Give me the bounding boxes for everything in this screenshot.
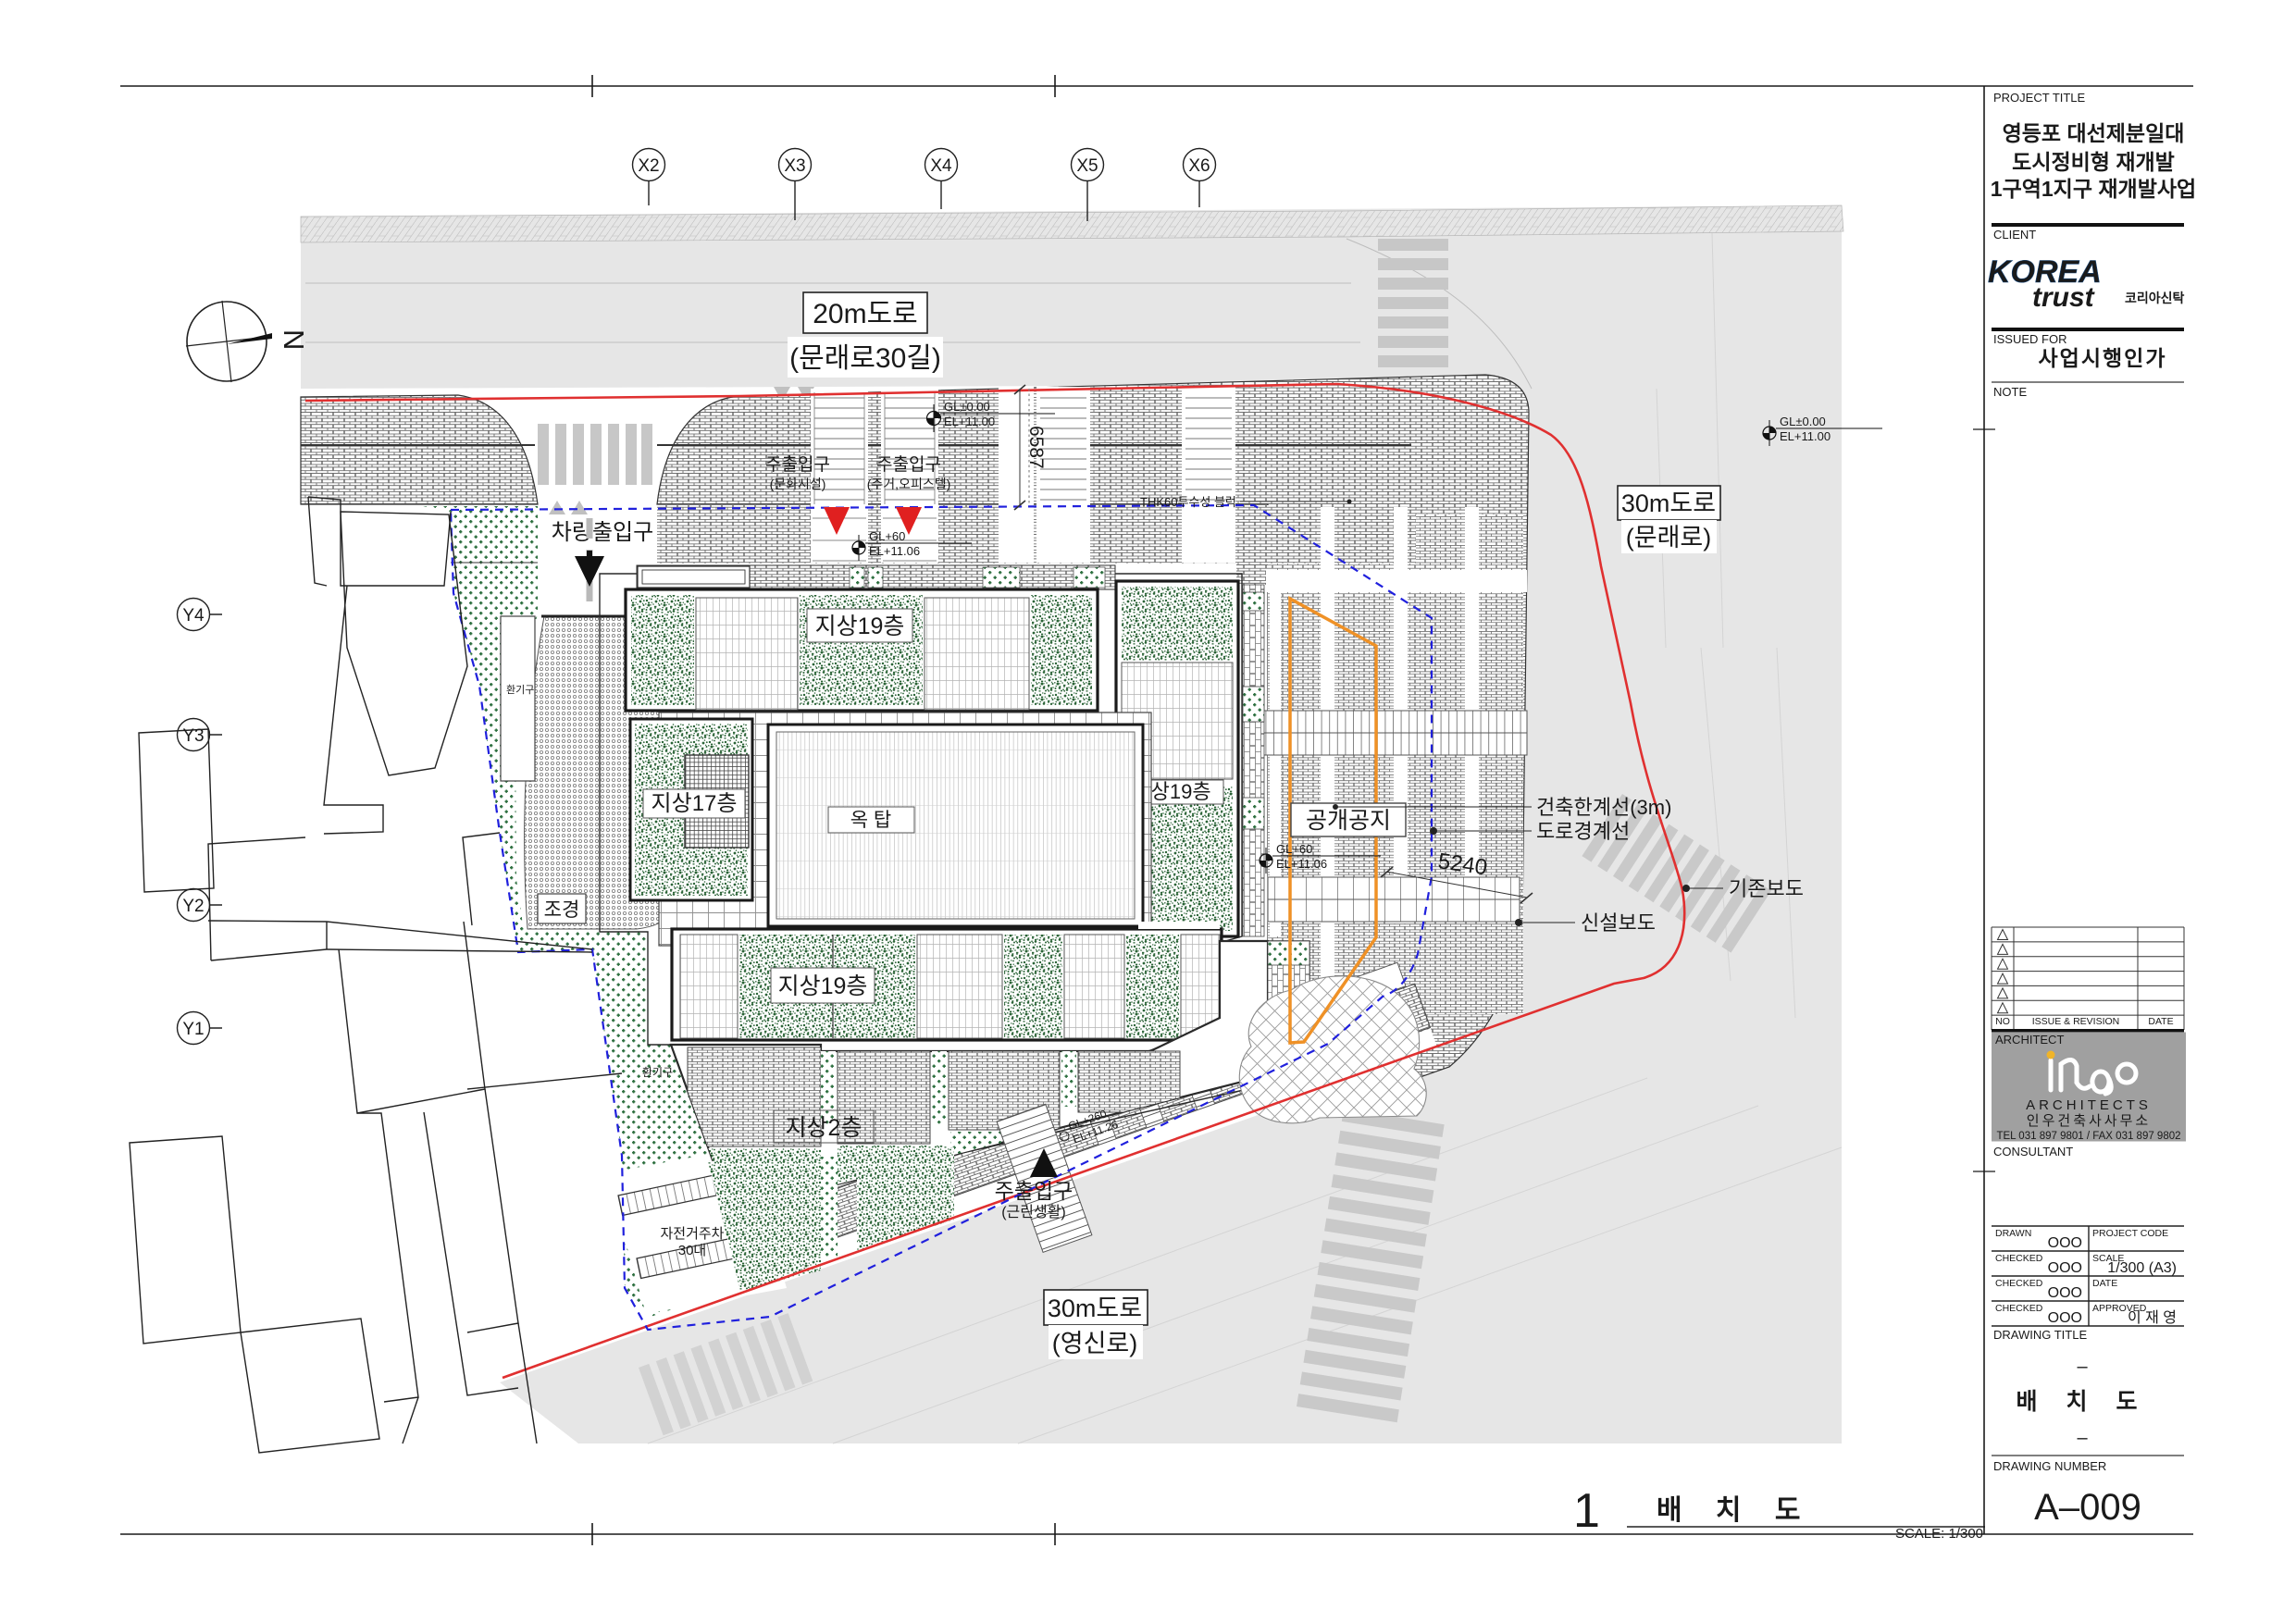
svg-text:1/300 (A3): 1/300 (A3) (2107, 1260, 2177, 1276)
svg-text:–: – (2077, 1428, 2088, 1448)
svg-text:GL±0.00: GL±0.00 (1780, 415, 1826, 428)
svg-text:지상17층: 지상17층 (652, 791, 738, 816)
svg-text:Y1: Y1 (182, 1020, 204, 1039)
svg-text:GL+60: GL+60 (869, 529, 905, 543)
svg-text:1: 1 (1573, 1484, 1600, 1538)
svg-text:N: N (278, 329, 310, 350)
svg-text:자전거주차: 자전거주차 (660, 1226, 724, 1242)
svg-text:CHECKED: CHECKED (1995, 1303, 2043, 1314)
svg-text:신설보도: 신설보도 (1581, 911, 1656, 935)
svg-text:6587: 6587 (1025, 426, 1047, 469)
svg-text:X2: X2 (638, 156, 659, 176)
svg-text:ARCHITECTS: ARCHITECTS (2026, 1097, 2152, 1113)
svg-text:환기구: 환기구 (506, 684, 534, 696)
svg-text:ISSUE & REVISION: ISSUE & REVISION (2032, 1016, 2120, 1027)
svg-text:(영신로): (영신로) (1052, 1330, 1138, 1357)
svg-text:차량출입구: 차량출입구 (552, 520, 653, 545)
svg-text:NO: NO (1995, 1016, 2010, 1027)
svg-text:OOO: OOO (2048, 1260, 2082, 1276)
svg-text:건축한계선(3m): 건축한계선(3m) (1536, 796, 1671, 819)
svg-text:30m도로: 30m도로 (1048, 1295, 1142, 1322)
svg-text:EL+11.00: EL+11.00 (1780, 429, 1831, 443)
svg-text:(주거,오피스텔): (주거,오피스텔) (867, 477, 951, 491)
svg-text:(문래로30길): (문래로30길) (789, 343, 941, 374)
svg-text:CHECKED: CHECKED (1995, 1278, 2043, 1289)
svg-text:GL±0.00: GL±0.00 (944, 400, 990, 414)
svg-text:ARCHITECT: ARCHITECT (1995, 1033, 2064, 1047)
svg-text:THK60투수성 블럭: THK60투수성 블럭 (1140, 495, 1236, 509)
svg-text:X3: X3 (784, 156, 805, 176)
svg-text:(근린생활): (근린생활) (1001, 1204, 1066, 1220)
svg-text:이 재 영: 이 재 영 (2128, 1309, 2177, 1326)
svg-text:공개공지: 공개공지 (1306, 808, 1391, 834)
svg-text:영등포 대선제분일대: 영등포 대선제분일대 (2003, 121, 2185, 145)
svg-text:1구역1지구 재개발사업: 1구역1지구 재개발사업 (1991, 177, 2196, 201)
svg-text:GL+60: GL+60 (1276, 842, 1312, 856)
svg-text:DRAWING NUMBER: DRAWING NUMBER (1993, 1459, 2106, 1473)
svg-text:CHECKED: CHECKED (1995, 1253, 2043, 1264)
svg-text:(문래로): (문래로) (1626, 524, 1712, 551)
svg-text:OOO: OOO (2048, 1310, 2082, 1326)
svg-text:도로경계선: 도로경계선 (1536, 820, 1630, 843)
svg-text:도시정비형 재개발: 도시정비형 재개발 (2012, 150, 2175, 174)
svg-text:인우건축사사무소: 인우건축사사무소 (2027, 1113, 2151, 1129)
svg-text:주출입구: 주출입구 (765, 454, 830, 475)
svg-text:EL+11.06: EL+11.06 (1276, 857, 1327, 871)
svg-text:OOO: OOO (2048, 1285, 2082, 1301)
svg-text:X5: X5 (1076, 156, 1098, 176)
svg-text:주출입구: 주출입구 (876, 454, 941, 475)
svg-text:EL+11.06: EL+11.06 (869, 544, 920, 558)
svg-text:사업시행인가: 사업시행인가 (2039, 346, 2167, 370)
svg-text:배 치 도: 배 치 도 (2017, 1389, 2149, 1415)
svg-text:지상2층: 지상2층 (786, 1115, 863, 1141)
svg-text:조경: 조경 (544, 899, 580, 921)
svg-text:Y3: Y3 (182, 726, 204, 746)
svg-text:A–009: A–009 (2034, 1487, 2141, 1528)
svg-text:(문화시설): (문화시설) (770, 477, 826, 491)
svg-text:DATE: DATE (2092, 1278, 2117, 1289)
svg-text:DRAWN: DRAWN (1995, 1228, 2031, 1239)
svg-text:trust: trust (2032, 282, 2096, 313)
svg-text:OOO: OOO (2048, 1235, 2082, 1251)
svg-text:–: – (2077, 1357, 2088, 1377)
svg-text:배 치 도: 배 치 도 (1657, 1495, 1813, 1526)
svg-text:CONSULTANT: CONSULTANT (1993, 1145, 2073, 1158)
svg-text:ISSUED FOR: ISSUED FOR (1993, 332, 2066, 346)
svg-text:30대: 30대 (678, 1243, 707, 1258)
svg-text:NOTE: NOTE (1993, 385, 2027, 399)
svg-text:X6: X6 (1188, 156, 1210, 176)
svg-text:30m도로: 30m도로 (1621, 489, 1716, 517)
svg-text:TEL 031 897 9801 / FAX 031 897: TEL 031 897 9801 / FAX 031 897 9802 (1996, 1131, 2180, 1142)
svg-text:CLIENT: CLIENT (1993, 228, 2036, 242)
svg-text:PROJECT TITLE: PROJECT TITLE (1993, 91, 2086, 105)
svg-text:Y4: Y4 (182, 606, 205, 626)
svg-text:환기구: 환기구 (642, 1066, 673, 1079)
svg-text:Y2: Y2 (182, 897, 204, 916)
svg-text:EL+11.00: EL+11.00 (944, 415, 995, 428)
svg-text:DATE: DATE (2148, 1016, 2173, 1027)
svg-text:주출입구: 주출입구 (995, 1179, 1074, 1203)
svg-text:코리아신탁: 코리아신탁 (2125, 291, 2185, 305)
svg-text:지상19층: 지상19층 (815, 613, 905, 639)
svg-text:PROJECT CODE: PROJECT CODE (2092, 1228, 2168, 1239)
svg-text:옥 탑: 옥 탑 (850, 810, 891, 831)
svg-text:지상19층: 지상19층 (778, 973, 868, 999)
svg-text:DRAWING TITLE: DRAWING TITLE (1993, 1328, 2087, 1342)
svg-text:20m도로: 20m도로 (813, 299, 918, 329)
svg-text:X4: X4 (930, 156, 952, 176)
svg-text:기존보도: 기존보도 (1729, 877, 1804, 900)
